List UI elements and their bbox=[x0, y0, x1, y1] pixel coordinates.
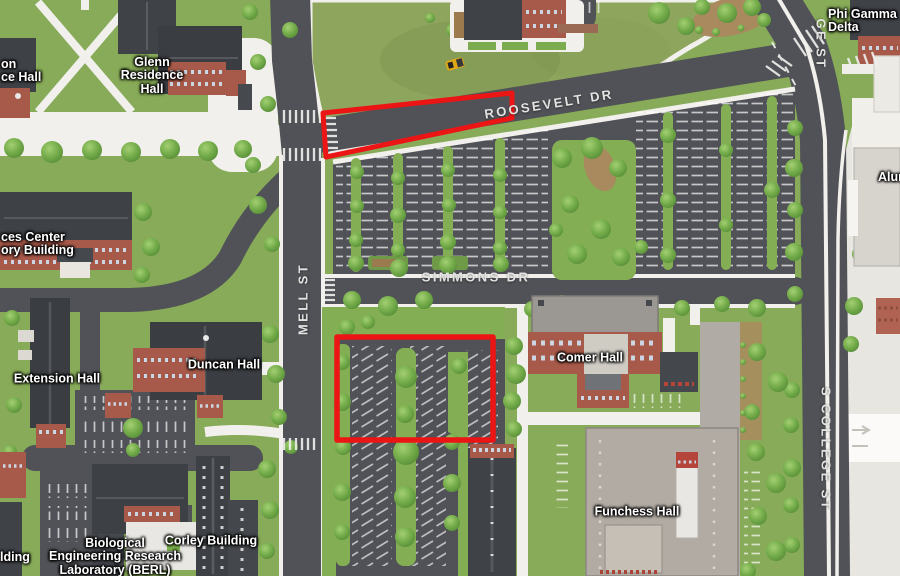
campus-map-canvas bbox=[0, 0, 900, 576]
building-funchess-hall bbox=[586, 428, 738, 576]
building-sciences-center bbox=[0, 192, 132, 278]
brick-wall bbox=[558, 24, 598, 33]
campus-map: Glenn Residence Hall on ce Hall ces Cent… bbox=[0, 0, 900, 576]
building-funchess-west-wing bbox=[468, 444, 516, 576]
building-berl bbox=[92, 464, 196, 576]
